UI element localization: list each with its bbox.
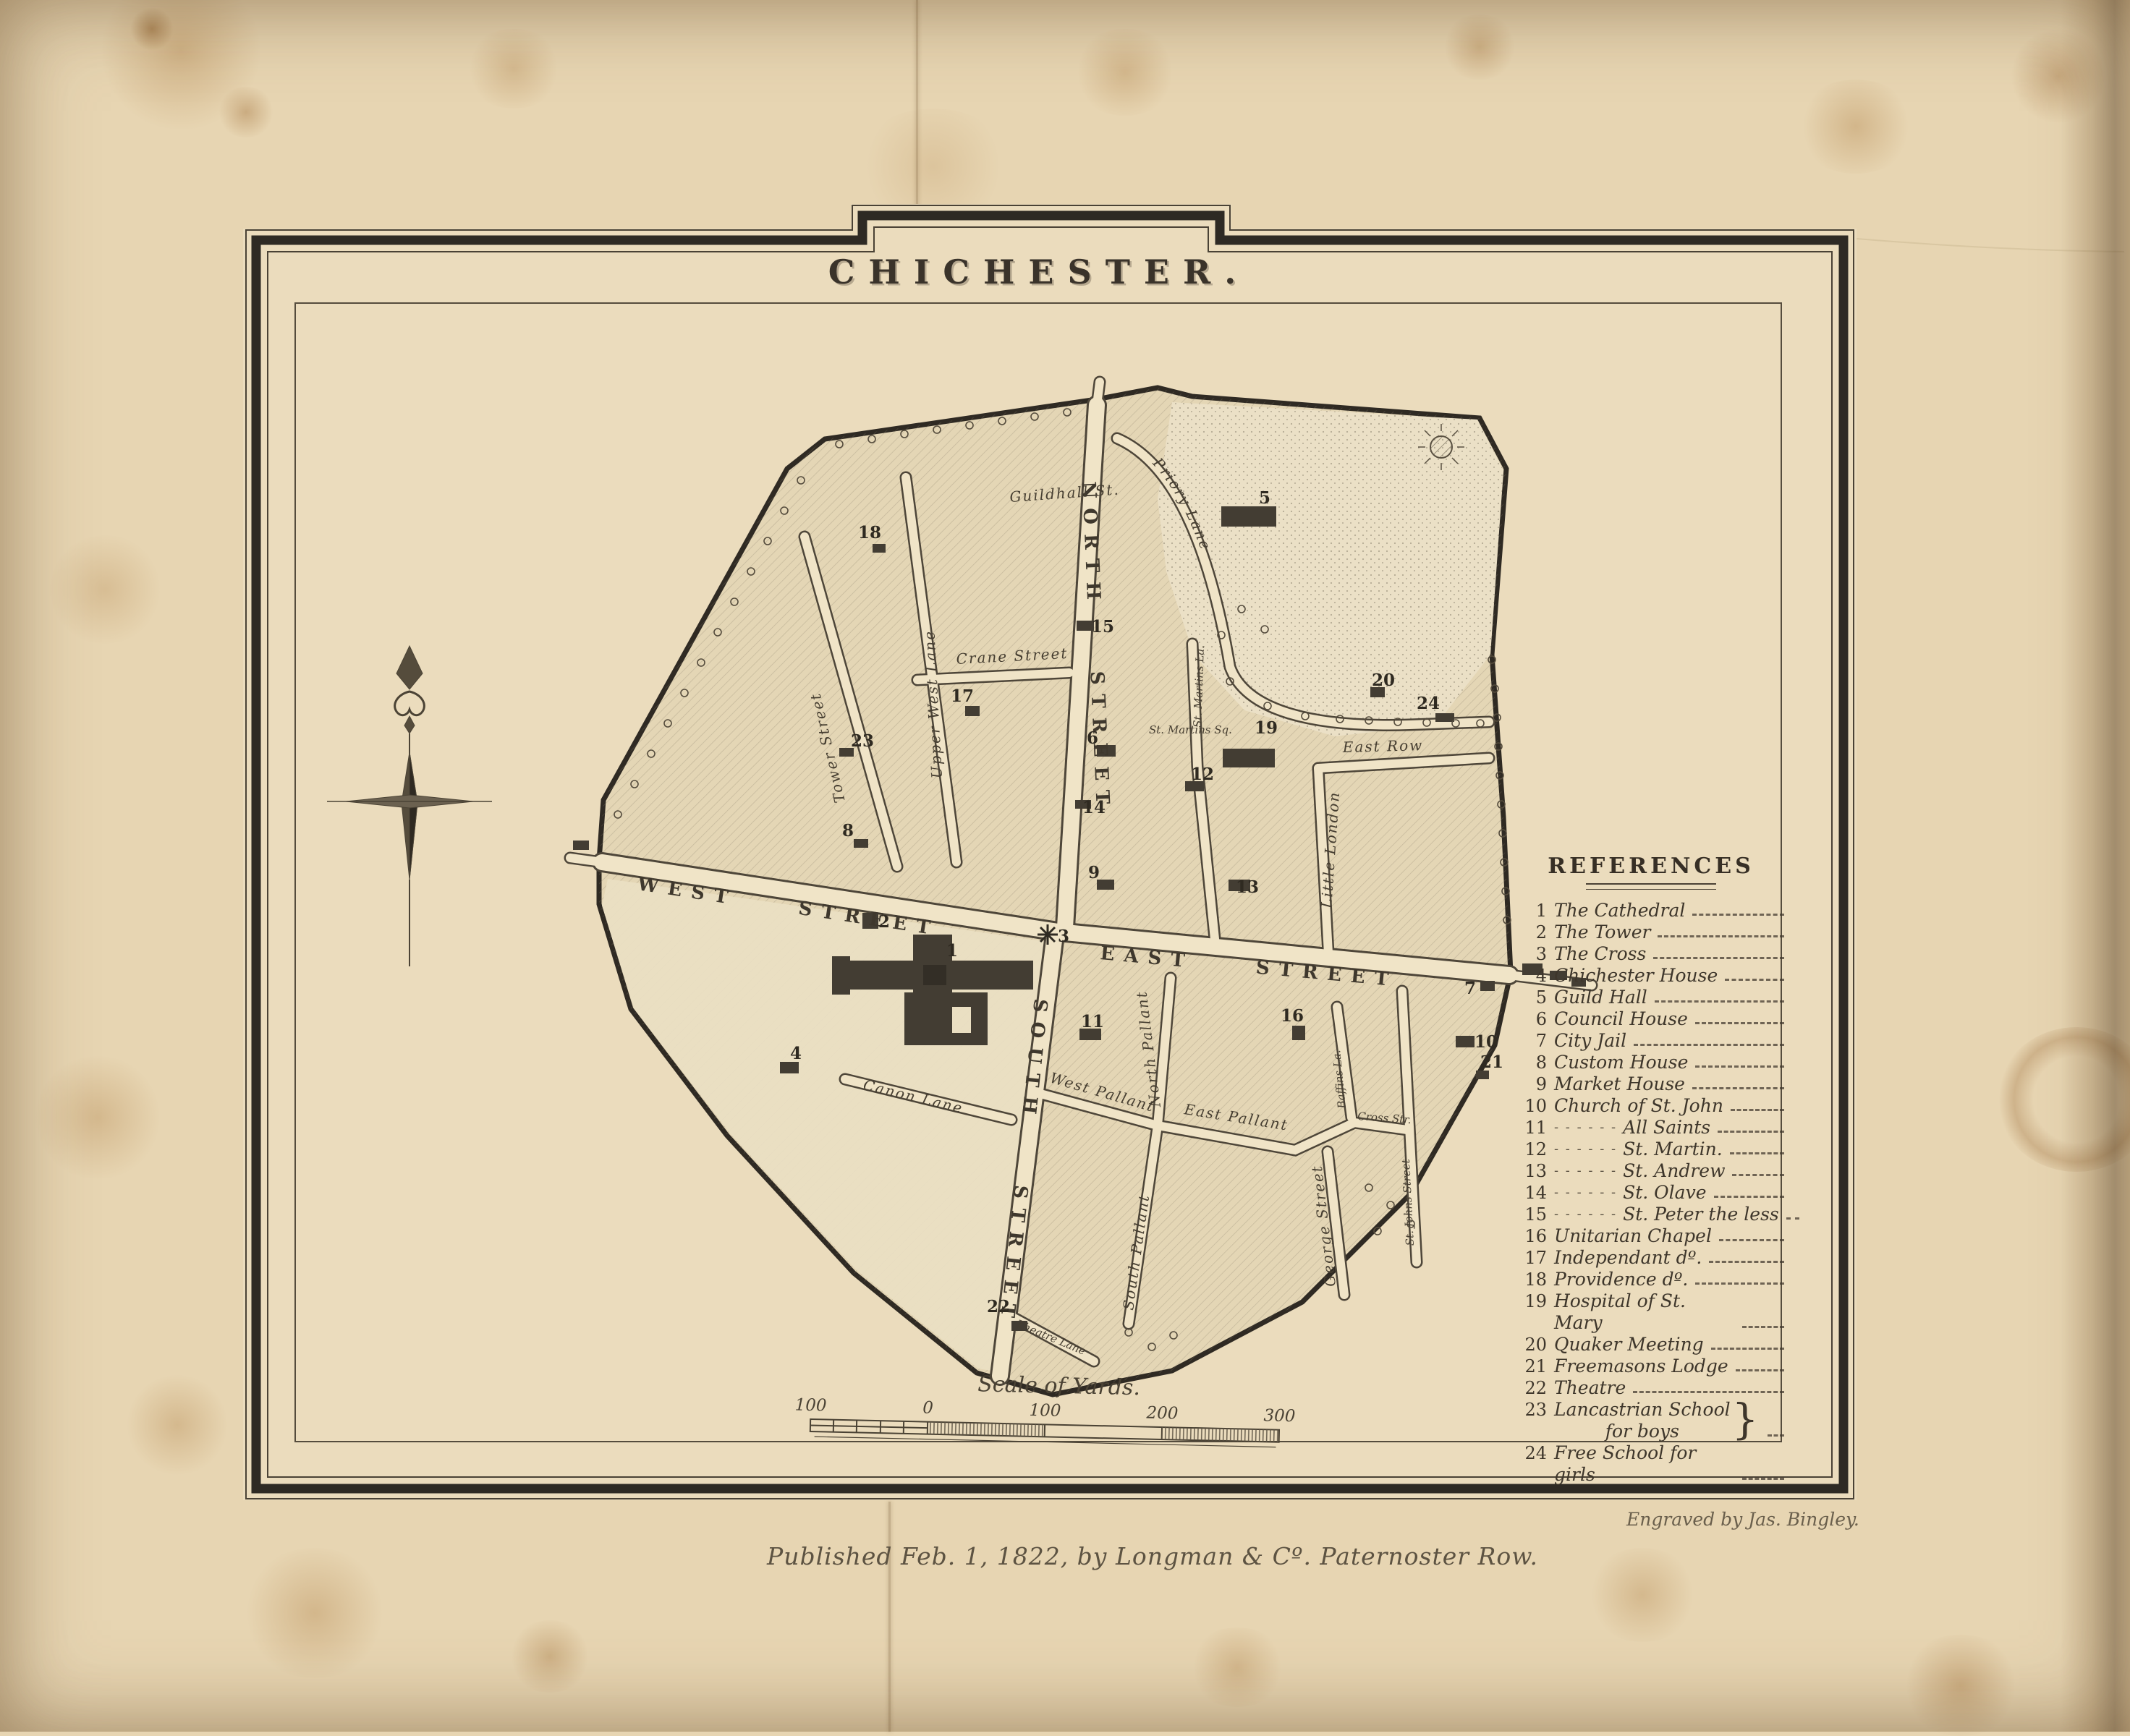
reference-number: 23 [1516,1399,1554,1421]
reference-ditto-dashes: - - - - - - [1554,1182,1623,1204]
reference-number: 11 [1516,1117,1554,1139]
reference-leader-dashes [1709,1261,1784,1263]
engraver-credit: Engraved by Jas. Bingley. [1626,1509,1859,1530]
marker-16: 16 [1281,1006,1304,1026]
map-title: CHICHESTER. [828,252,1249,292]
reference-leader-dashes [1634,1044,1784,1046]
reference-label: St. Olave [1623,1182,1706,1204]
reference-row: 11 - - - - - - All Saints [1516,1117,1786,1139]
reference-leader-dashes [1658,935,1784,937]
reference-number: 10 [1516,1095,1554,1117]
reference-leader-dashes [1692,914,1784,916]
marker-21: 21 [1480,1052,1503,1072]
reference-row: 3 The Cross [1516,943,1786,965]
marker-5: 5 [1259,488,1270,508]
reference-leader-dashes [1711,1348,1784,1350]
reference-leader-dashes [1714,1196,1785,1198]
reference-label: The Cathedral [1554,900,1685,922]
references-rule [1586,883,1716,890]
marker-20: 20 [1372,671,1395,690]
marker-1: 1 [946,941,958,961]
reference-label: St. Peter the less [1623,1204,1779,1225]
references-list: 1 The Cathedral 2 The Tower 3 The Cross … [1516,900,1786,1486]
reference-brace: } [1731,1399,1760,1439]
reference-label: Quaker Meeting [1554,1334,1704,1356]
reference-ditto-dashes: - - - - - - [1554,1204,1623,1225]
reference-label: Free School for girls [1554,1442,1735,1486]
reference-number: 17 [1516,1247,1554,1269]
marker-6: 6 [1087,728,1098,748]
svg-text:0: 0 [922,1399,933,1418]
reference-number: 2 [1516,922,1554,943]
marker-13: 13 [1236,877,1259,897]
reference-row: 5 Guild Hall [1516,987,1786,1008]
reference-leader-dashes [1633,1391,1784,1393]
reference-leader-dashes [1692,1087,1784,1089]
marker-7: 7 [1464,979,1476,998]
reference-leader-dashes [1742,1478,1784,1480]
reference-leader-dashes [1786,1217,1799,1220]
marker-2: 2 [878,912,890,932]
reference-row: 1 The Cathedral [1516,900,1786,922]
reference-ditto-dashes: - - - - - - [1554,1160,1623,1182]
marker-24: 24 [1417,694,1440,713]
reference-number: 24 [1516,1442,1554,1464]
reference-ditto-dashes: - - - - - - [1554,1139,1623,1160]
marker-11: 11 [1081,1012,1104,1031]
reference-number: 14 [1516,1182,1554,1204]
reference-row: 14 - - - - - - St. Olave [1516,1182,1786,1204]
marker-19: 19 [1255,718,1278,738]
reference-leader-dashes [1736,1369,1784,1371]
reference-row: 17 Independant dº. [1516,1247,1786,1269]
svg-text:100: 100 [1029,1401,1061,1421]
reference-number: 9 [1516,1073,1554,1095]
reference-number: 6 [1516,1008,1554,1030]
svg-text:100: 100 [794,1396,826,1416]
reference-row: 15 - - - - - - St. Peter the less [1516,1204,1786,1225]
reference-leader-dashes [1768,1434,1784,1437]
reference-row: 23 Lancastrian School for boys } [1516,1399,1786,1442]
guild-hall-building [1221,506,1276,527]
reference-row: 7 City Jail [1516,1030,1786,1052]
reference-label: Custom House [1554,1052,1688,1073]
marker-8: 8 [842,821,854,841]
marker-9: 9 [1088,863,1100,882]
marker-4: 4 [790,1044,802,1063]
reference-label: The Tower [1554,922,1650,943]
reference-row: 12 - - - - - - St. Martin. [1516,1139,1786,1160]
reference-number: 15 [1516,1204,1554,1225]
reference-row: 16 Unitarian Chapel [1516,1225,1786,1247]
reference-label: Hospital of St. Mary [1554,1290,1735,1334]
reference-row: 8 Custom House [1516,1052,1786,1073]
reference-label: Guild Hall [1554,987,1647,1008]
reference-leader-dashes [1725,979,1784,981]
reference-row: 24 Free School for girls [1516,1442,1786,1486]
marker-14: 14 [1082,798,1106,817]
marker-22: 22 [987,1297,1010,1316]
page-edge-shadow [2061,0,2130,1732]
reference-label: Lancastrian School for boys [1554,1399,1731,1442]
publication-line: Published Feb. 1, 1822, by Longman & Cº.… [767,1542,1538,1570]
reference-leader-dashes [1695,1282,1784,1285]
reference-row: 10 Church of St. John [1516,1095,1786,1117]
reference-label: Providence dº. [1554,1269,1688,1290]
reference-number: 21 [1516,1356,1554,1377]
scanned-map-page: { "title": "CHICHESTER.", "references": … [0,0,2130,1732]
reference-leader-dashes [1653,957,1784,959]
reference-leader-dashes [1718,1131,1784,1133]
reference-label: Chichester House [1554,965,1718,987]
marker-10: 10 [1475,1032,1498,1052]
reference-row: 20 Quaker Meeting [1516,1334,1786,1356]
reference-label: Church of St. John [1554,1095,1723,1117]
reference-number: 8 [1516,1052,1554,1073]
scale-caption: Scale of Yards. [977,1371,1140,1400]
reference-number: 7 [1516,1030,1554,1052]
reference-number: 3 [1516,943,1554,965]
reference-leader-dashes [1655,1000,1784,1003]
reference-number: 1 [1516,900,1554,922]
reference-ditto-dashes: - - - - - - [1554,1117,1623,1139]
marker-15: 15 [1091,617,1114,637]
reference-leader-dashes [1695,1022,1784,1024]
west-suburb-road [570,858,602,862]
reference-leader-dashes [1731,1109,1784,1111]
reference-label: Market House [1554,1073,1685,1095]
reference-leader-dashes [1730,1152,1784,1154]
references-title: REFERENCES [1516,854,1786,879]
east-row-label: East Row [1342,736,1424,756]
reference-number: 12 [1516,1139,1554,1160]
reference-label: Freemasons Lodge [1554,1356,1728,1377]
map-plate: CHICHESTER. [0,0,2130,1732]
reference-label: St. Andrew [1623,1160,1725,1182]
reference-row: 21 Freemasons Lodge [1516,1356,1786,1377]
reference-label: All Saints [1623,1117,1710,1139]
reference-label: St. Martin. [1623,1139,1723,1160]
references-panel: REFERENCES 1 The Cathedral 2 The Tower 3… [1516,854,1786,1486]
reference-leader-dashes [1719,1239,1784,1241]
reference-label: Independant dº. [1554,1247,1702,1269]
reference-row: 6 Council House [1516,1008,1786,1030]
st-marys-hospital-building [1223,749,1275,767]
reference-number: 5 [1516,987,1554,1008]
reference-row: 9 Market House [1516,1073,1786,1095]
svg-text:300: 300 [1263,1406,1295,1426]
reference-number: 13 [1516,1160,1554,1182]
reference-leader-dashes [1695,1065,1784,1068]
market-cross-icon [1038,924,1058,945]
reference-number: 19 [1516,1290,1554,1312]
bastion-mound [1418,424,1464,470]
svg-text:200: 200 [1145,1404,1178,1424]
reference-row: 18 Providence dº. [1516,1269,1786,1290]
marker-23: 23 [851,731,874,751]
reference-leader-dashes [1732,1174,1784,1176]
reference-number: 22 [1516,1377,1554,1399]
reference-number: 16 [1516,1225,1554,1247]
reference-number: 18 [1516,1269,1554,1290]
marker-17: 17 [951,686,974,706]
north-gate-road [1097,382,1100,405]
reference-row: 19 Hospital of St. Mary [1516,1290,1786,1334]
reference-number: 4 [1516,965,1554,987]
reference-label: City Jail [1554,1030,1626,1052]
reference-label: Theatre [1554,1377,1626,1399]
reference-row: 2 The Tower [1516,922,1786,943]
reference-row: 4 Chichester House [1516,965,1786,987]
reference-label: Unitarian Chapel [1554,1225,1712,1247]
marker-3: 3 [1058,927,1069,946]
reference-label: Council House [1554,1008,1688,1030]
marker-12: 12 [1191,765,1214,784]
marker-18: 18 [858,523,881,542]
reference-row: 13 - - - - - - St. Andrew [1516,1160,1786,1182]
reference-number: 20 [1516,1334,1554,1356]
reference-label: The Cross [1554,943,1646,965]
reference-leader-dashes [1742,1326,1784,1328]
